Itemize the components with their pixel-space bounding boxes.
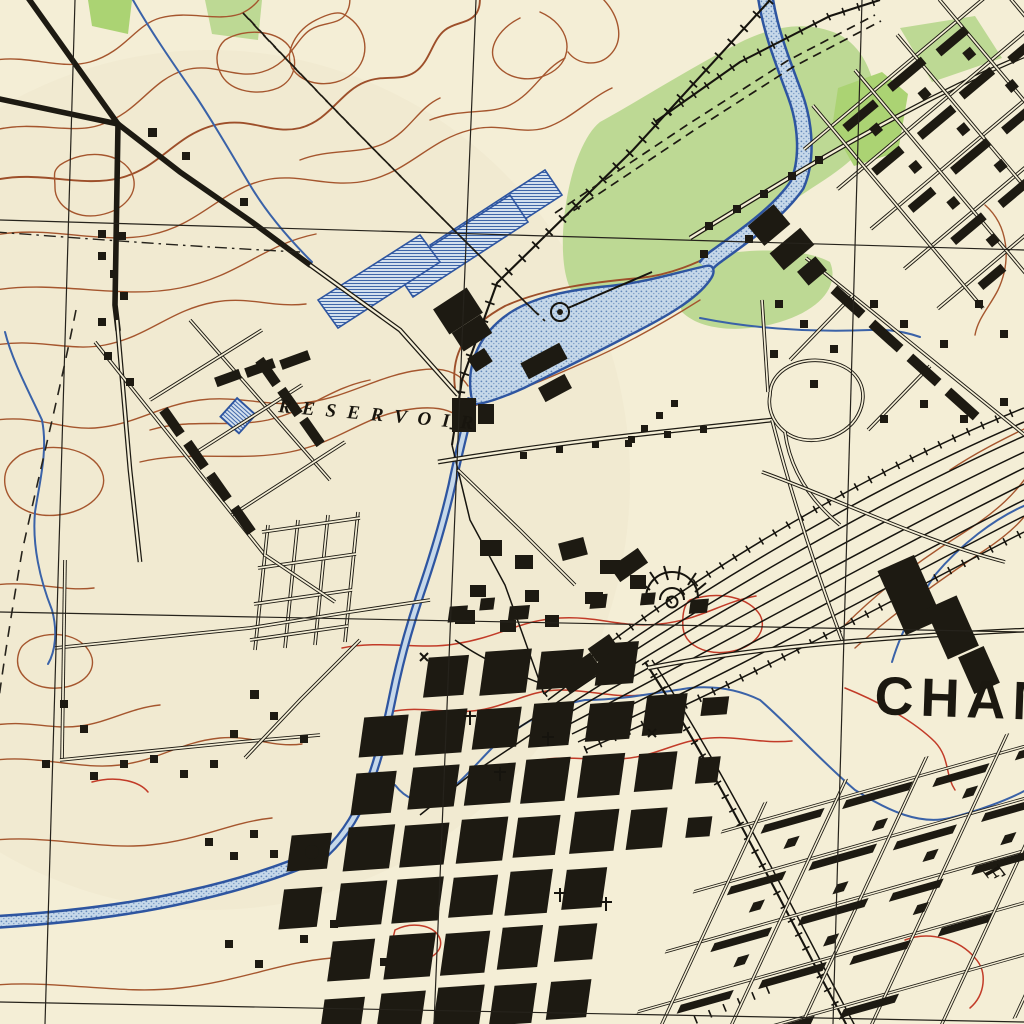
city-name-label: CHAM [874, 666, 1024, 733]
topo-map-scan: RESERVOIR CHAM F [0, 0, 1024, 1024]
map-canvas: RESERVOIR CHAM F [0, 0, 1024, 1024]
storage-tank-icon [305, 845, 319, 859]
